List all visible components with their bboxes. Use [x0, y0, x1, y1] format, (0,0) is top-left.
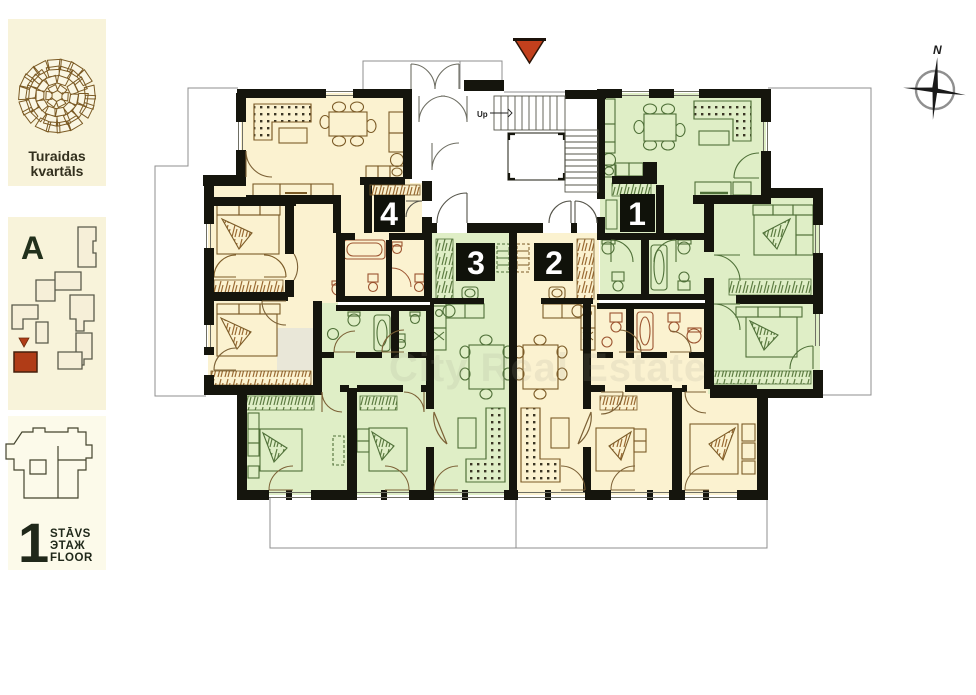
svg-text:FLOOR: FLOOR — [50, 552, 93, 564]
svg-text:Turaidas: Turaidas — [28, 148, 86, 164]
svg-text:3: 3 — [467, 245, 485, 281]
svg-text:ЭТАЖ: ЭТАЖ — [50, 540, 85, 552]
svg-text:City Real Estate: City Real Estate — [389, 346, 707, 390]
svg-text:1: 1 — [18, 511, 49, 574]
svg-text:N: N — [933, 43, 942, 57]
svg-text:STĀVS: STĀVS — [50, 528, 91, 540]
svg-text:A: A — [21, 230, 44, 266]
svg-text:Up: Up — [477, 110, 488, 119]
svg-text:4: 4 — [380, 196, 398, 232]
svg-text:kvartāls: kvartāls — [31, 163, 84, 179]
svg-text:2: 2 — [545, 245, 563, 281]
svg-text:1: 1 — [628, 196, 646, 232]
